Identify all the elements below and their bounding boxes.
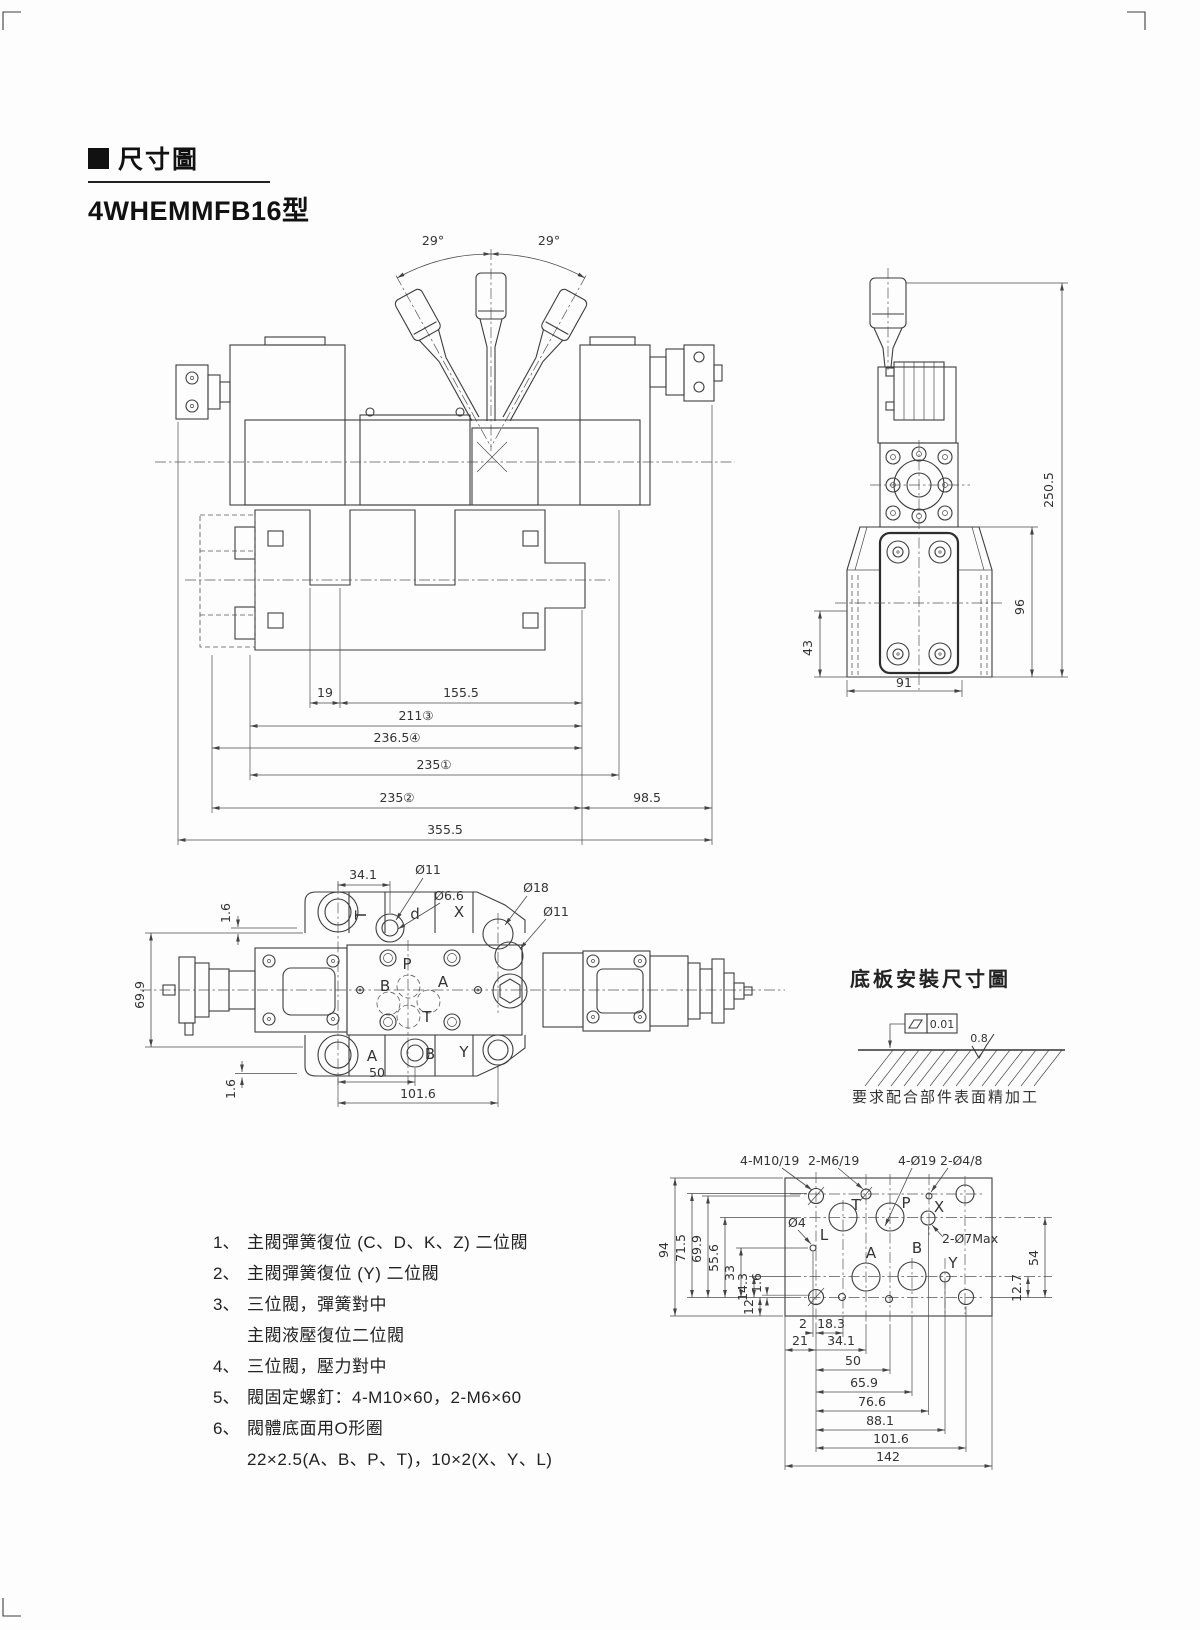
dim-65-9: 65.9 [850,1375,878,1390]
baseplate-surface-figure: 0.01 0.8 [820,1002,1100,1097]
dim-19: 19 [317,685,333,700]
dim-250-5: 250.5 [1041,472,1056,508]
port-label-t: T [421,1008,432,1026]
dim-88-1: 88.1 [866,1413,894,1428]
note-number: 6、 [213,1418,247,1439]
plate-label-l: L [820,1226,829,1244]
note-item: 1、主閥彈簧復位 (C、D、K、Z) 二位閥 [213,1232,552,1253]
note-text: 三位閥，彈簧對中 [247,1294,387,1315]
corner-mark-top-right [1127,12,1145,30]
dim-69-9: 69.9 [132,981,147,1009]
left-shaft-assembly [163,957,255,1035]
note-item: 6、閥體底面用O形圈 [213,1418,552,1439]
dim-55-6: 55.6 [706,1244,721,1272]
bottom-label-b: B [425,1045,435,1063]
side-base [835,440,1005,690]
note-number: 2、 [213,1263,247,1284]
note-item: 4、三位閥，壓力對中 [213,1356,552,1377]
note-number [213,1449,247,1470]
dim-94: 94 [656,1242,671,1258]
note-text: 主閥液壓復位二位閥 [247,1325,405,1346]
note-text: 主閥彈簧復位 (Y) 二位閥 [247,1263,439,1284]
dim-12-7: 12.7 [1009,1274,1024,1302]
angle-right-label: 29° [538,233,560,248]
plate-hole-callouts: 4-M10/19 2-M6/19 4-Ø19 2-Ø4/8 Ø4 2-Ø7Max [740,1153,998,1246]
port-label-b: B [380,977,390,995]
dim-155-5: 155.5 [443,685,479,700]
right-hole-cluster [483,919,527,1008]
plate-label-t: T [850,1196,861,1214]
bottom-label-y: Y [458,1043,469,1061]
note-number: 4、 [213,1356,247,1377]
dia-11-right: Ø11 [543,904,569,919]
dim-1-6: 1.6 [749,1273,764,1293]
valve-body-front [155,337,735,505]
note-text: 閥固定螺釘：4-M10×60，2-M6×60 [247,1387,522,1408]
dim-101-6: 101.6 [873,1431,909,1446]
note-item: 2、主閥彈簧復位 (Y) 二位閥 [213,1263,552,1284]
dim-50: 50 [369,1065,385,1080]
callout-2-d7max: 2-Ø7Max [942,1231,998,1246]
page-title: 尺寸圖 [118,140,199,176]
plate-label-y: Y [947,1254,958,1272]
plate-port-labels: T P X L A B Y [820,1194,959,1272]
dim-12: 12 [741,1299,756,1315]
lever-tilted-right [478,268,599,454]
corner-mark-bottom-left [3,1598,21,1616]
note-text: 主閥彈簧復位 (C、D、K、Z) 二位閥 [247,1232,528,1253]
flatness-tolerance-frame: 0.01 [890,1014,957,1048]
dim-43: 43 [800,640,815,656]
callout-4-m10-19: 4-M10/19 [740,1153,799,1168]
dim-211-3: 211③ [398,708,433,723]
note-text: 閥體底面用O形圈 [247,1418,383,1439]
note-text: 22×2.5(A、B、P、T)，10×2(X、Y、L) [247,1449,552,1470]
port-hole-l [810,1245,816,1251]
callout-2-m6-19: 2-M6/19 [808,1153,859,1168]
callout-2-d4-8: 2-Ø4/8 [940,1153,982,1168]
dim-71-5: 71.5 [673,1234,688,1262]
strip-label-x: X [454,903,464,921]
dim-96: 96 [1012,599,1027,615]
side-body [878,362,958,527]
plate-left-dimensions: 94 71.5 69.9 55.6 33 14.3 1.6 12 [656,1178,810,1316]
dim-355-5: 355.5 [427,822,463,837]
left-flange [176,365,208,419]
baseplate-figure-title: 底板安裝尺寸圖 [850,963,1011,992]
front-view-drawing: 29° 29° [140,215,740,855]
mounting-plate-drawing: T P X L A B Y 4-M10/19 2-M6/19 4-Ø19 2-Ø… [640,1130,1110,1480]
note-item: 3、三位閥，彈簧對中 [213,1294,552,1315]
subplate-front [185,510,610,650]
dim-142: 142 [876,1449,900,1464]
note-item: 5、閥固定螺釘：4-M10×60，2-M6×60 [213,1387,552,1408]
notes-list: 1、主閥彈簧復位 (C、D、K、Z) 二位閥 2、主閥彈簧復位 (Y) 二位閥 … [213,1232,552,1480]
side-view-drawing: 250.5 96 43 91 [790,250,1080,710]
side-lever [870,268,906,370]
dim-91: 91 [896,675,912,690]
center-section [360,415,470,505]
drawing-sheet: 尺寸圖 4WHEMMFB16型 [0,0,1200,1630]
dim-1-6-top: 1.6 [218,903,233,923]
dim-50: 50 [845,1353,861,1368]
note-number: 3、 [213,1294,247,1315]
lever-assembly: 29° 29° [383,233,599,454]
plate-label-p: P [901,1194,910,1212]
dia-18: Ø18 [523,880,549,895]
title-underline [88,181,270,183]
dim-69-9: 69.9 [689,1235,704,1263]
flatness-icon [909,1020,922,1028]
dim-21: 21 [792,1333,808,1348]
dim-34-1: 34.1 [827,1333,855,1348]
plate-label-b: B [912,1239,922,1257]
top-view-drawing: P B A T T d X [135,845,795,1110]
strip-label-t-rotated: T [352,910,370,921]
section-marker-icon [88,148,109,169]
surface-hatch [858,1050,1065,1086]
note-text: 三位閥，壓力對中 [247,1356,387,1377]
right-assembly-top [543,951,752,1031]
dim-2: 2 [799,1316,807,1331]
dim-236-5-4: 236.5④ [374,730,421,745]
plate-label-x: X [934,1198,944,1216]
right-flange [684,345,714,401]
dia-11-top: Ø11 [415,862,441,877]
dia-6-6: Ø6.6 [434,888,464,903]
dim-1-6-bottom: 1.6 [223,1079,238,1099]
dim-98-5: 98.5 [633,790,661,805]
callout-4-d19: 4-Ø19 [898,1153,936,1168]
lever-tilted-left [383,268,504,454]
note-number [213,1325,247,1346]
surface-roughness-symbol: 0.8 [970,1032,994,1058]
port-label-a: A [438,973,449,991]
bottom-label-a: A [367,1047,378,1065]
dim-34-1: 34.1 [349,867,377,882]
side-view-dimensions: 250.5 96 43 91 [800,283,1068,697]
dim-14-3: 14.3 [735,1273,750,1301]
front-view-dimensions: 19 155.5 211③ 236.5④ 235① 235② 98.5 355.… [178,405,712,845]
baseplate-figure-note: 要求配合部件表面精加工 [852,1086,1039,1107]
note-number: 1、 [213,1232,247,1253]
port-label-p: P [402,955,411,973]
note-item: 主閥液壓復位二位閥 [213,1325,552,1346]
dim-235-1: 235① [416,757,451,772]
pivot-housing [472,428,538,505]
dim-18-3: 18.3 [817,1316,845,1331]
dim-54: 54 [1026,1250,1041,1266]
angle-left-label: 29° [422,233,444,248]
flatness-value: 0.01 [930,1018,955,1031]
roughness-value: 0.8 [970,1032,988,1045]
dim-235-2: 235② [379,790,414,805]
note-item: 22×2.5(A、B、P、T)，10×2(X、Y、L) [213,1449,552,1470]
dim-101-6: 101.6 [400,1086,436,1101]
corner-mark-top-left [3,12,21,30]
plate-label-a: A [866,1244,877,1262]
plate-bottom-dimensions: 2 18.3 21 34.1 50 65.9 76.6 88.1 101.6 1… [785,1226,992,1470]
note-number: 5、 [213,1387,247,1408]
dim-76-6: 76.6 [858,1394,886,1409]
plate-right-dimensions: 12.7 54 [990,1218,1052,1302]
callout-d4: Ø4 [788,1215,806,1230]
